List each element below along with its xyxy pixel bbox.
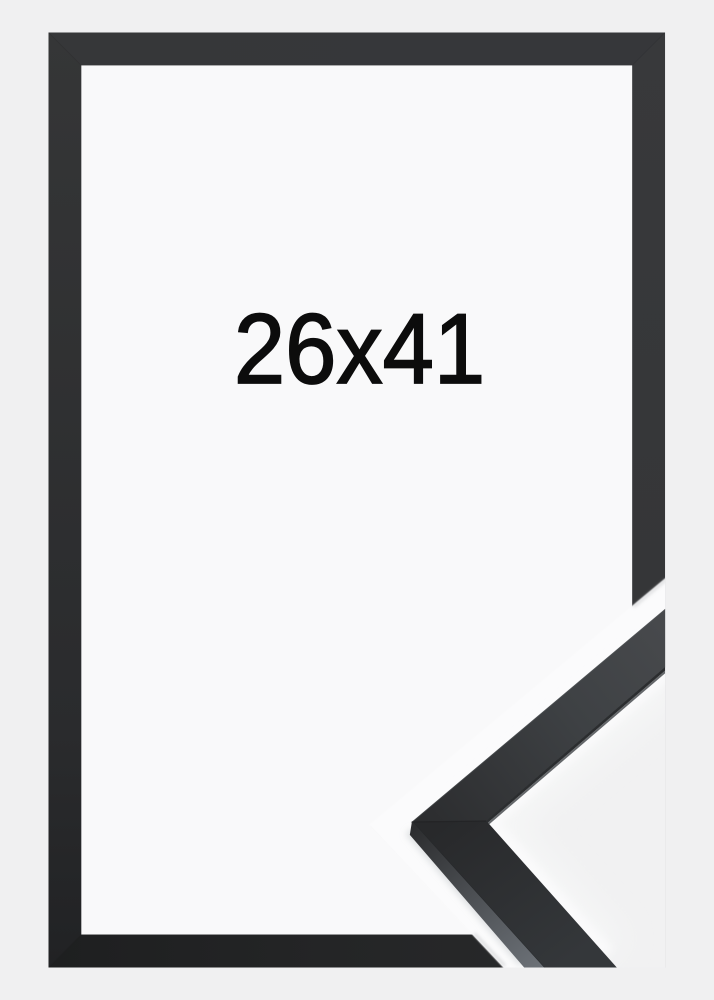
svg-text:26x41: 26x41 <box>234 294 485 405</box>
